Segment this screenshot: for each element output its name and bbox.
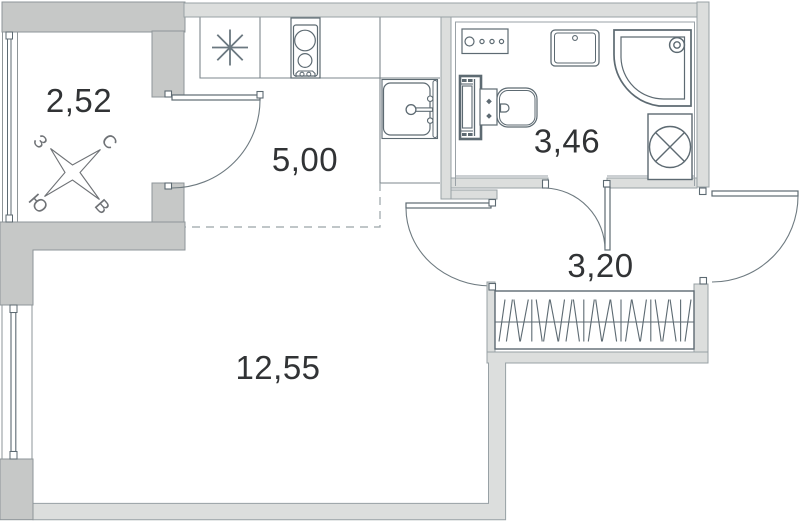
svg-text:2,52: 2,52 — [46, 82, 112, 119]
svg-text:3,20: 3,20 — [567, 247, 633, 284]
svg-text:5,00: 5,00 — [272, 141, 338, 178]
svg-text:12,55: 12,55 — [235, 349, 320, 386]
svg-text:3,46: 3,46 — [534, 123, 600, 160]
